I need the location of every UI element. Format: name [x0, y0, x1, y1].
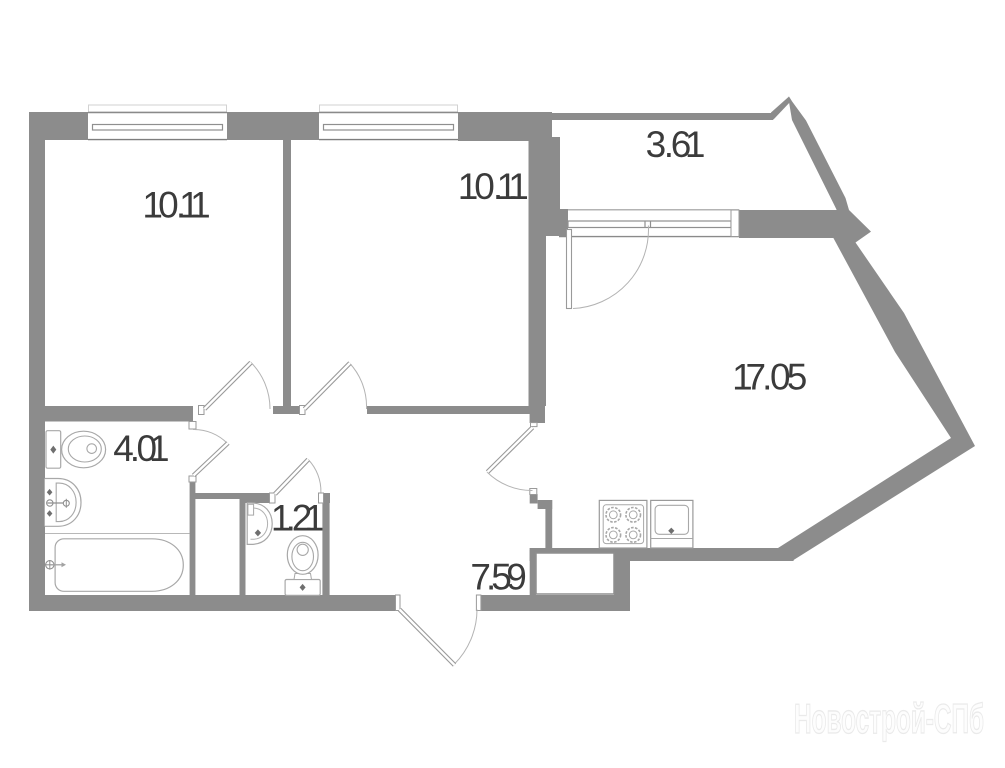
svg-text:4.01: 4.01 [113, 428, 169, 469]
svg-text:1.21: 1.21 [271, 498, 325, 539]
svg-text:Новострой-СПб: Новострой-СПб [794, 695, 984, 742]
svg-text:10.11: 10.11 [142, 185, 210, 226]
svg-text:7.59: 7.59 [470, 557, 526, 598]
svg-text:10.11: 10.11 [458, 166, 529, 207]
svg-text:17.05: 17.05 [732, 357, 807, 398]
svg-text:3.61: 3.61 [646, 124, 706, 165]
